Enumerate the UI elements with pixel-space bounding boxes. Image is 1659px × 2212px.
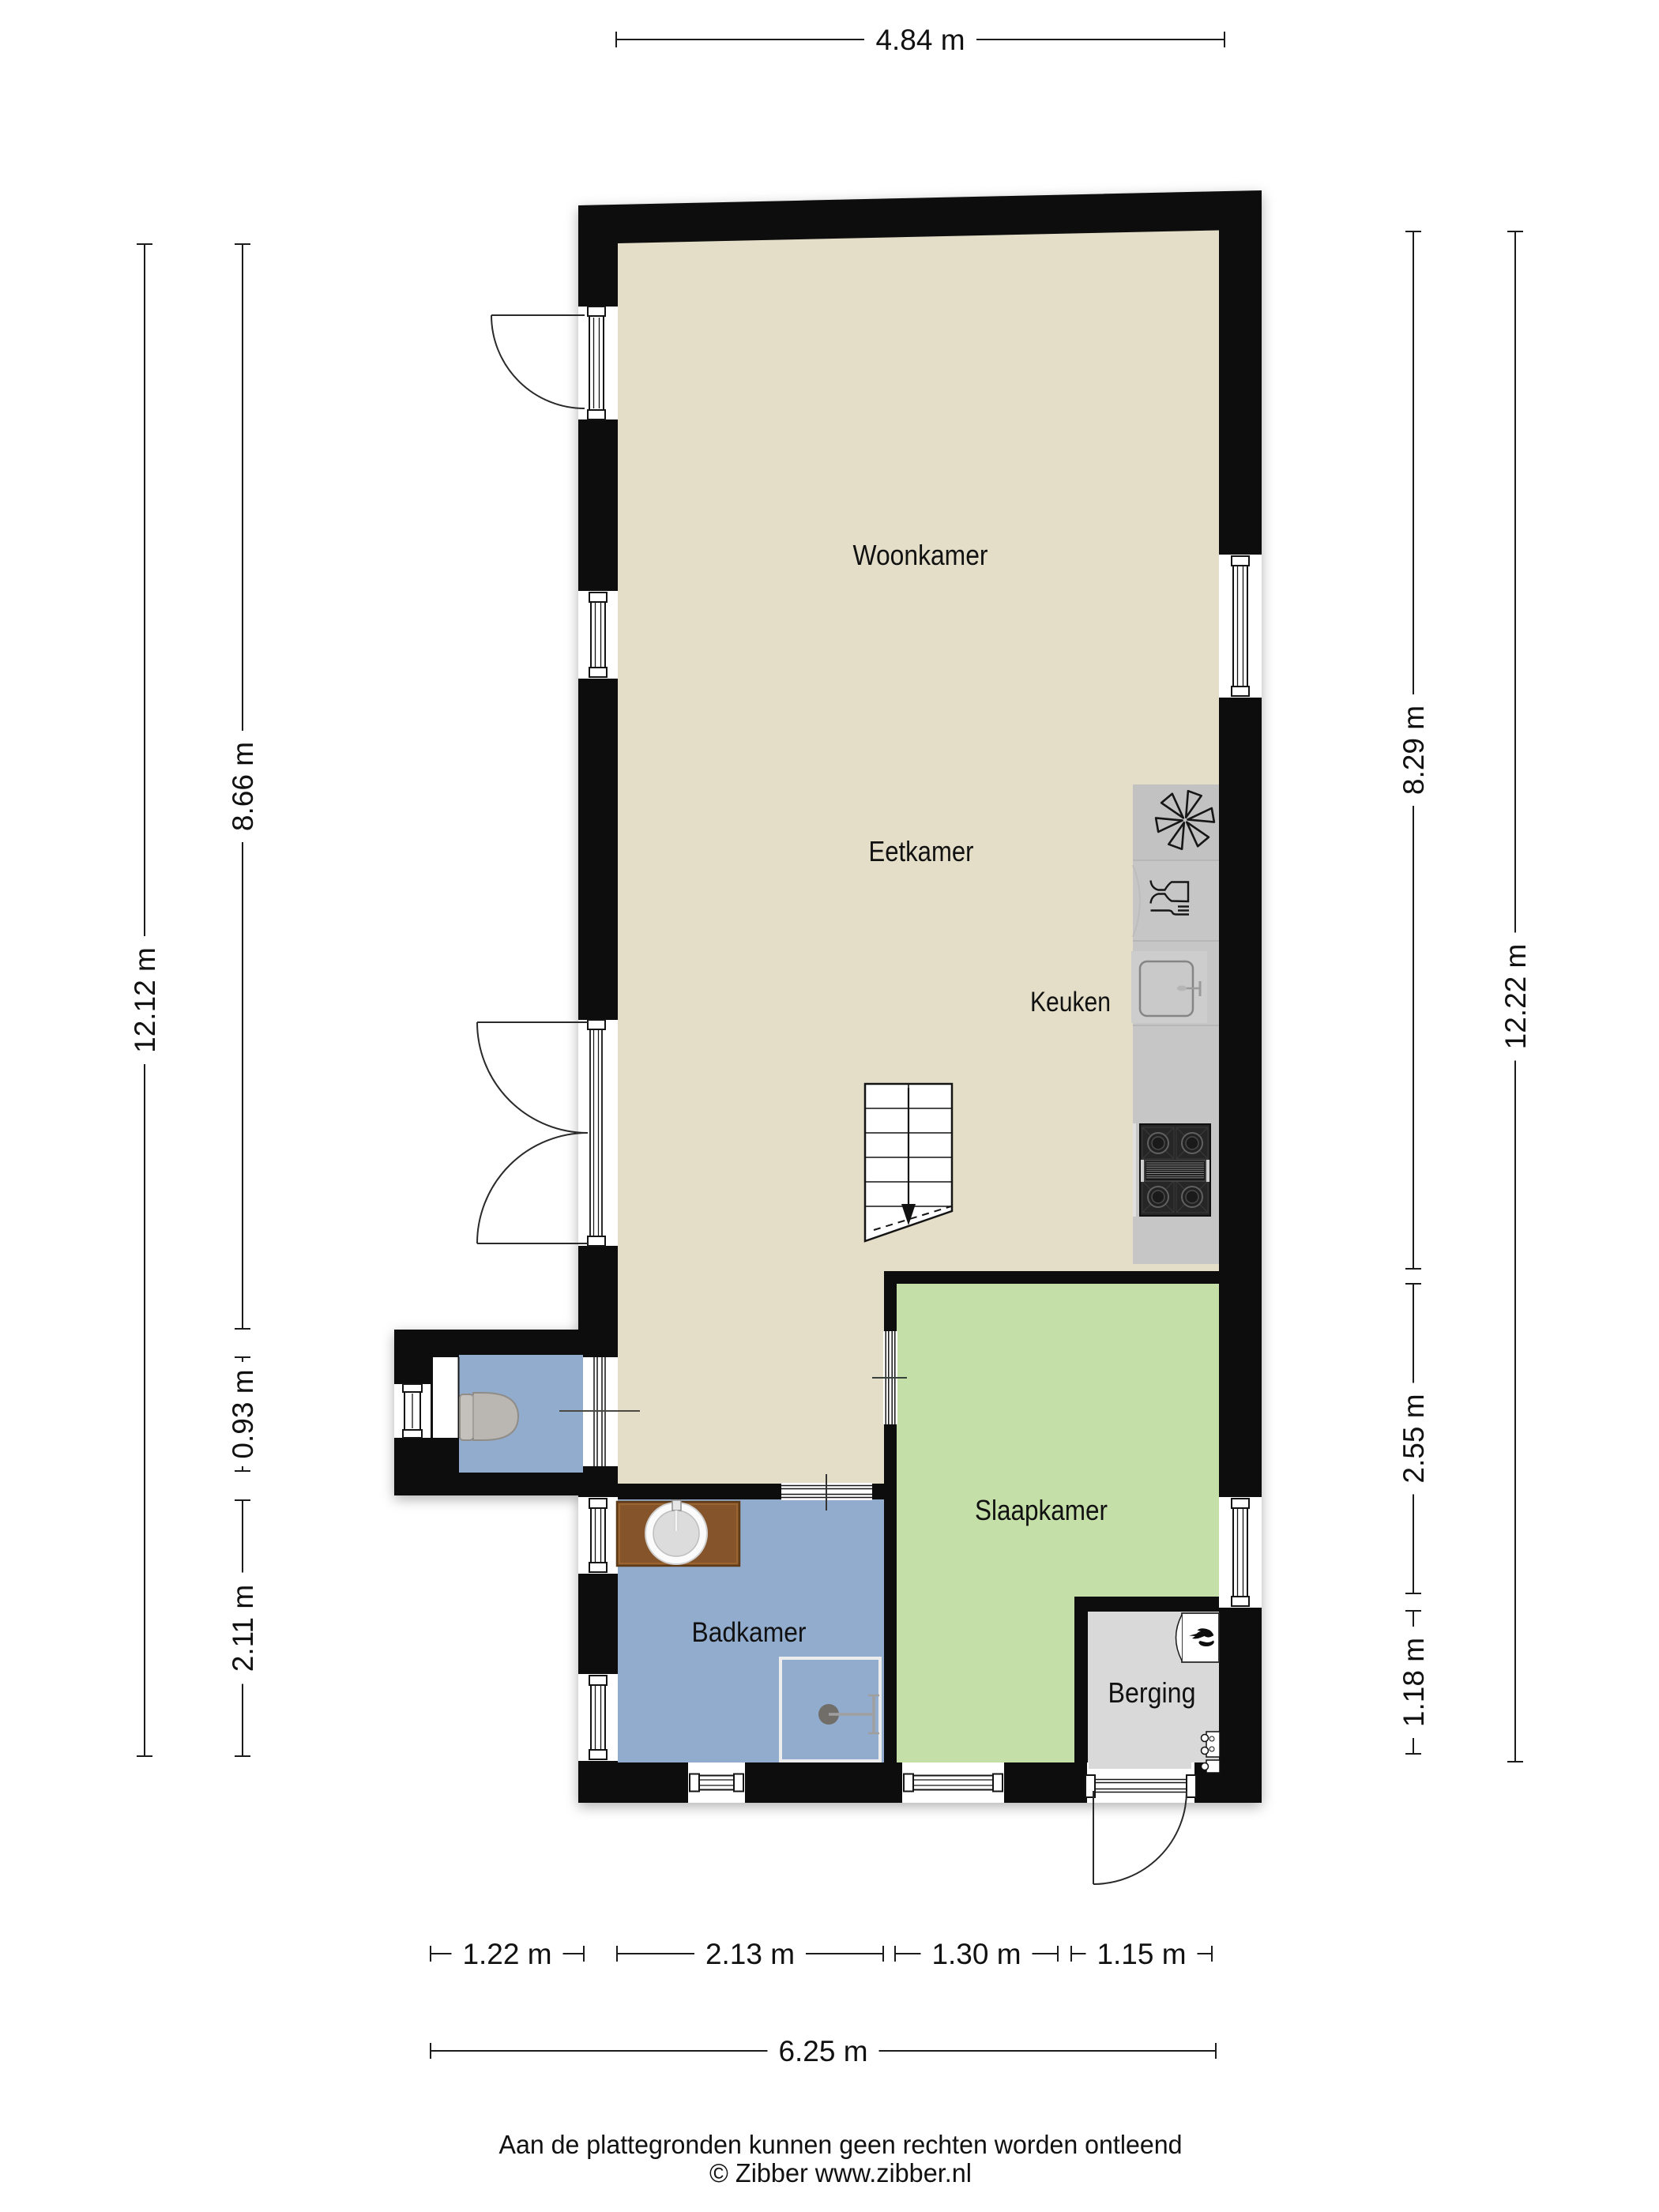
svg-text:© Zibber www.zibber.nl: © Zibber www.zibber.nl bbox=[709, 2158, 972, 2188]
svg-text:2.11 m: 2.11 m bbox=[227, 1585, 259, 1672]
svg-text:0.93 m: 0.93 m bbox=[227, 1369, 259, 1458]
svg-text:Badkamer: Badkamer bbox=[692, 1617, 807, 1648]
svg-text:Keuken: Keuken bbox=[1030, 987, 1111, 1018]
svg-text:1.22 m: 1.22 m bbox=[462, 1938, 551, 1970]
svg-text:Woonkamer: Woonkamer bbox=[853, 539, 988, 571]
svg-text:1.18 m: 1.18 m bbox=[1398, 1638, 1430, 1727]
svg-text:12.12 m: 12.12 m bbox=[129, 947, 161, 1053]
svg-text:4.84 m: 4.84 m bbox=[875, 24, 965, 56]
svg-text:1.30 m: 1.30 m bbox=[931, 1938, 1021, 1970]
svg-text:Aan de plattegronden kunnen ge: Aan de plattegronden kunnen geen rechten… bbox=[499, 2130, 1183, 2159]
svg-text:2.55 m: 2.55 m bbox=[1398, 1394, 1430, 1483]
svg-text:8.29 m: 8.29 m bbox=[1398, 705, 1430, 795]
svg-text:6.25 m: 6.25 m bbox=[778, 2035, 867, 2067]
svg-text:Berging: Berging bbox=[1108, 1676, 1196, 1709]
svg-text:1.15 m: 1.15 m bbox=[1097, 1938, 1186, 1970]
svg-text:2.13 m: 2.13 m bbox=[705, 1938, 795, 1970]
svg-text:Eetkamer: Eetkamer bbox=[869, 835, 974, 867]
svg-text:12.22 m: 12.22 m bbox=[1499, 944, 1532, 1050]
svg-text:8.66 m: 8.66 m bbox=[227, 742, 259, 831]
svg-text:Slaapkamer: Slaapkamer bbox=[975, 1494, 1108, 1526]
